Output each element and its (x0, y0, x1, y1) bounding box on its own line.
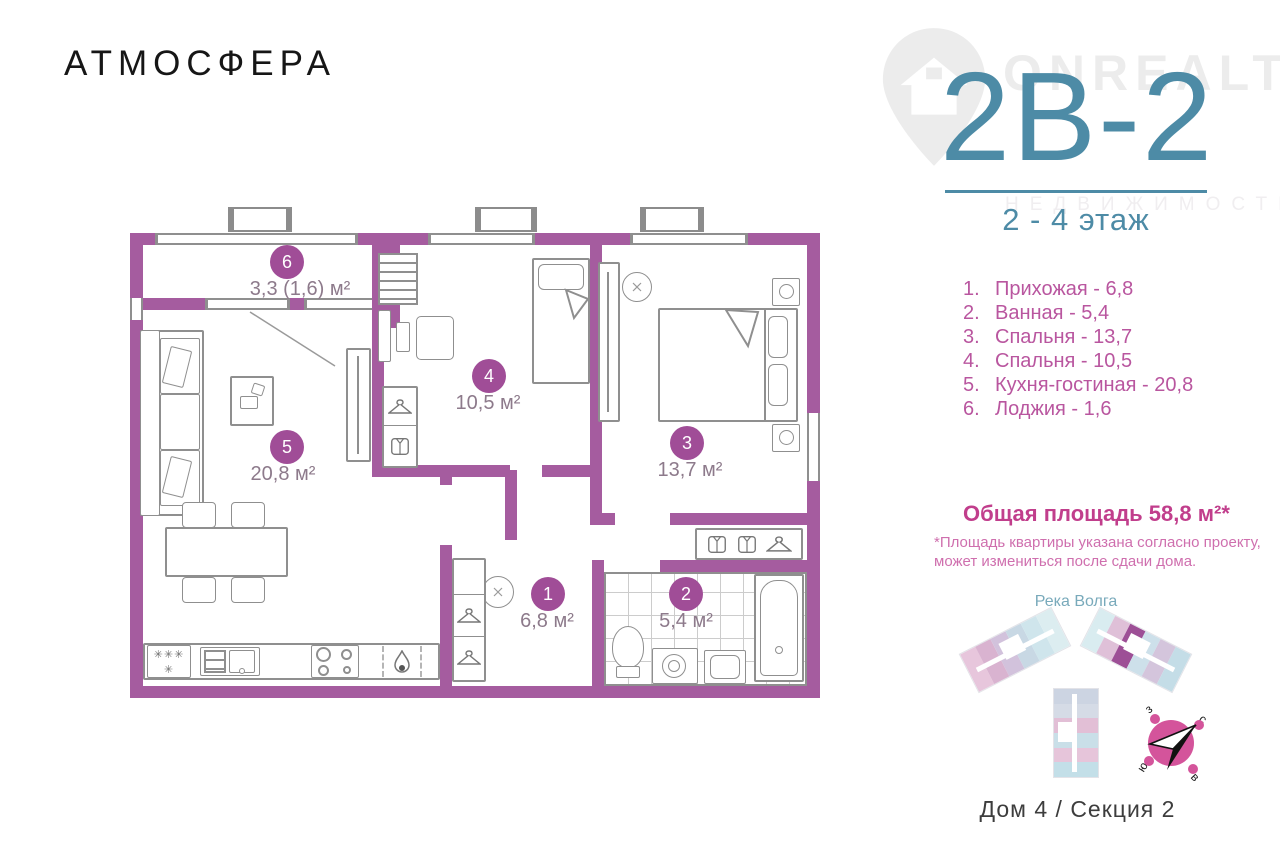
toilet-tank (616, 666, 640, 678)
desk (378, 310, 391, 362)
room-list-number: 6. (963, 397, 995, 421)
room-list-text: Кухня-гостиная - 20,8 (995, 373, 1193, 397)
compass-rose: з с ю в (1138, 700, 1222, 790)
room-badge-2: 2 (669, 577, 703, 611)
disclaimer-line: может измениться после сдачи дома. (934, 552, 1264, 571)
wall-segment (807, 233, 820, 413)
river-label: Река Волга (976, 593, 1176, 611)
chair (182, 502, 216, 528)
unit-underline (945, 190, 1207, 193)
sofa-cushion (160, 394, 200, 450)
wall-segment (592, 560, 604, 686)
desk-drawer (396, 322, 410, 352)
room-area-2: 5,4 м² (659, 610, 713, 633)
building-wing-bottom (1053, 688, 1099, 778)
balcony-rail (640, 207, 704, 232)
building-wing-left (959, 607, 1072, 693)
stove (311, 645, 359, 678)
desk-chair (416, 316, 454, 360)
compass-bump (1188, 764, 1198, 774)
window (428, 233, 535, 245)
pillow (538, 264, 584, 290)
room-list: 1.Прихожая - 6,82.Ванная - 5,43.Спальня … (963, 277, 1263, 421)
room-list-text: Спальня - 13,7 (995, 325, 1132, 349)
flame-icon (394, 650, 410, 674)
drain (775, 646, 783, 654)
sink-drainer (204, 650, 226, 673)
chair (231, 577, 265, 603)
room-badge-6: 6 (270, 245, 304, 279)
room-list-item: 3.Спальня - 13,7 (963, 325, 1263, 349)
window (630, 233, 748, 245)
area-disclaimer: *Площадь квартиры указана согласно проек… (934, 533, 1264, 571)
wall-segment (660, 560, 807, 572)
room-badge-3: 3 (670, 426, 704, 460)
chair (231, 502, 265, 528)
hanger-icon (454, 636, 484, 678)
room-list-item: 1.Прихожая - 6,8 (963, 277, 1263, 301)
wall-segment (602, 513, 615, 525)
room-list-text: Ванная - 5,4 (995, 301, 1109, 325)
window (130, 298, 143, 320)
chair (182, 577, 216, 603)
unit-code: 2В-2 (940, 52, 1212, 182)
wardrobe (598, 262, 620, 422)
flat-plan-poster: АТМОСФЕРА ONREALT НЕДВИЖИМОСТЬ 2В-2 2 - … (0, 0, 1280, 854)
burner (316, 647, 331, 662)
balcony-rail (475, 207, 537, 232)
wall-segment (748, 233, 820, 245)
washer-drum (668, 660, 680, 672)
shirt-icon (706, 532, 728, 556)
developer-logo: АТМОСФЕРА (64, 44, 336, 84)
site-caption: Дом 4 / Секция 2 (975, 796, 1180, 823)
sink-bowl (710, 655, 740, 679)
room-area-4: 10,5 м² (456, 392, 521, 415)
lamp (779, 284, 794, 299)
wall-segment (807, 481, 820, 698)
wall-segment (505, 470, 517, 540)
wardrobe-line (607, 272, 609, 412)
compass-bump (1150, 714, 1160, 724)
room-area-5: 20,8 м² (251, 463, 316, 486)
pillow (768, 316, 788, 358)
room-list-item: 2.Ванная - 5,4 (963, 301, 1263, 325)
wall-segment (440, 545, 452, 686)
cabinet-line (357, 356, 359, 454)
building-wing-right (1080, 607, 1193, 693)
room-list-number: 5. (963, 373, 995, 397)
hanger-icon (454, 594, 484, 636)
wall-segment (130, 233, 155, 245)
room-list-number: 2. (963, 301, 995, 325)
lamp (779, 430, 794, 445)
bathtub-inner (760, 580, 798, 676)
shelving (378, 253, 418, 305)
burner (318, 665, 329, 676)
corridor-wardrobe (695, 528, 803, 560)
wall-segment (440, 477, 452, 485)
room-area-6: 3,3 (1,6) м² (250, 278, 350, 301)
wall-segment (535, 233, 630, 245)
room-list-number: 3. (963, 325, 995, 349)
room-list-item: 6.Лоджия - 1,6 (963, 397, 1263, 421)
dining-table (165, 527, 288, 577)
room-area-3: 13,7 м² (658, 459, 723, 482)
room-area-1: 6,8 м² (520, 610, 574, 633)
pillow (768, 364, 788, 406)
wall-segment (130, 686, 820, 698)
compass-bump (1194, 720, 1204, 730)
room-badge-1: 1 (531, 577, 565, 611)
room-list-item: 5.Кухня-гостиная - 20,8 (963, 373, 1263, 397)
balcony-rail (228, 207, 292, 232)
room-badge-4: 4 (472, 359, 506, 393)
room-list-number: 4. (963, 349, 995, 373)
window (807, 413, 820, 481)
shirt-icon (384, 426, 416, 466)
bed-headboard-line (764, 310, 766, 420)
faucet (239, 668, 245, 674)
fridge-star: ✳ (147, 662, 191, 678)
floor-plan: ✳✳✳ ✳ (130, 198, 820, 700)
wall-segment (670, 513, 820, 525)
window (155, 233, 358, 245)
unit-header: 2В-2 2 - 4 этаж (940, 52, 1212, 238)
gas-boiler (382, 646, 422, 677)
room-list-text: Прихожая - 6,8 (995, 277, 1133, 301)
sofa-backrest (140, 330, 160, 516)
shirt-icon (736, 532, 758, 556)
laptop-icon (240, 396, 258, 409)
room-list-number: 1. (963, 277, 995, 301)
toilet (612, 626, 644, 668)
burner (341, 649, 352, 660)
total-area: Общая площадь 58,8 м²* (963, 501, 1230, 527)
freezer-stars: ✳✳✳ (147, 647, 191, 663)
room-badge-5: 5 (270, 430, 304, 464)
wall-segment (542, 465, 602, 477)
compass-bump (1144, 756, 1154, 766)
room-list-text: Спальня - 10,5 (995, 349, 1132, 373)
hanger-icon (384, 388, 416, 426)
burner (343, 666, 351, 674)
room-list-item: 4.Спальня - 10,5 (963, 349, 1263, 373)
compass-dial (1148, 720, 1194, 766)
room-list-text: Лоджия - 1,6 (995, 397, 1111, 421)
floor-range: 2 - 4 этаж (940, 202, 1212, 238)
mirror (482, 576, 514, 608)
stair-core (1058, 722, 1078, 741)
wall-segment (358, 233, 428, 245)
disclaimer-line: *Площадь квартиры указана согласно проек… (934, 533, 1264, 552)
hanger-icon (766, 536, 792, 553)
wall-segment (143, 298, 205, 310)
mirror (622, 272, 652, 302)
